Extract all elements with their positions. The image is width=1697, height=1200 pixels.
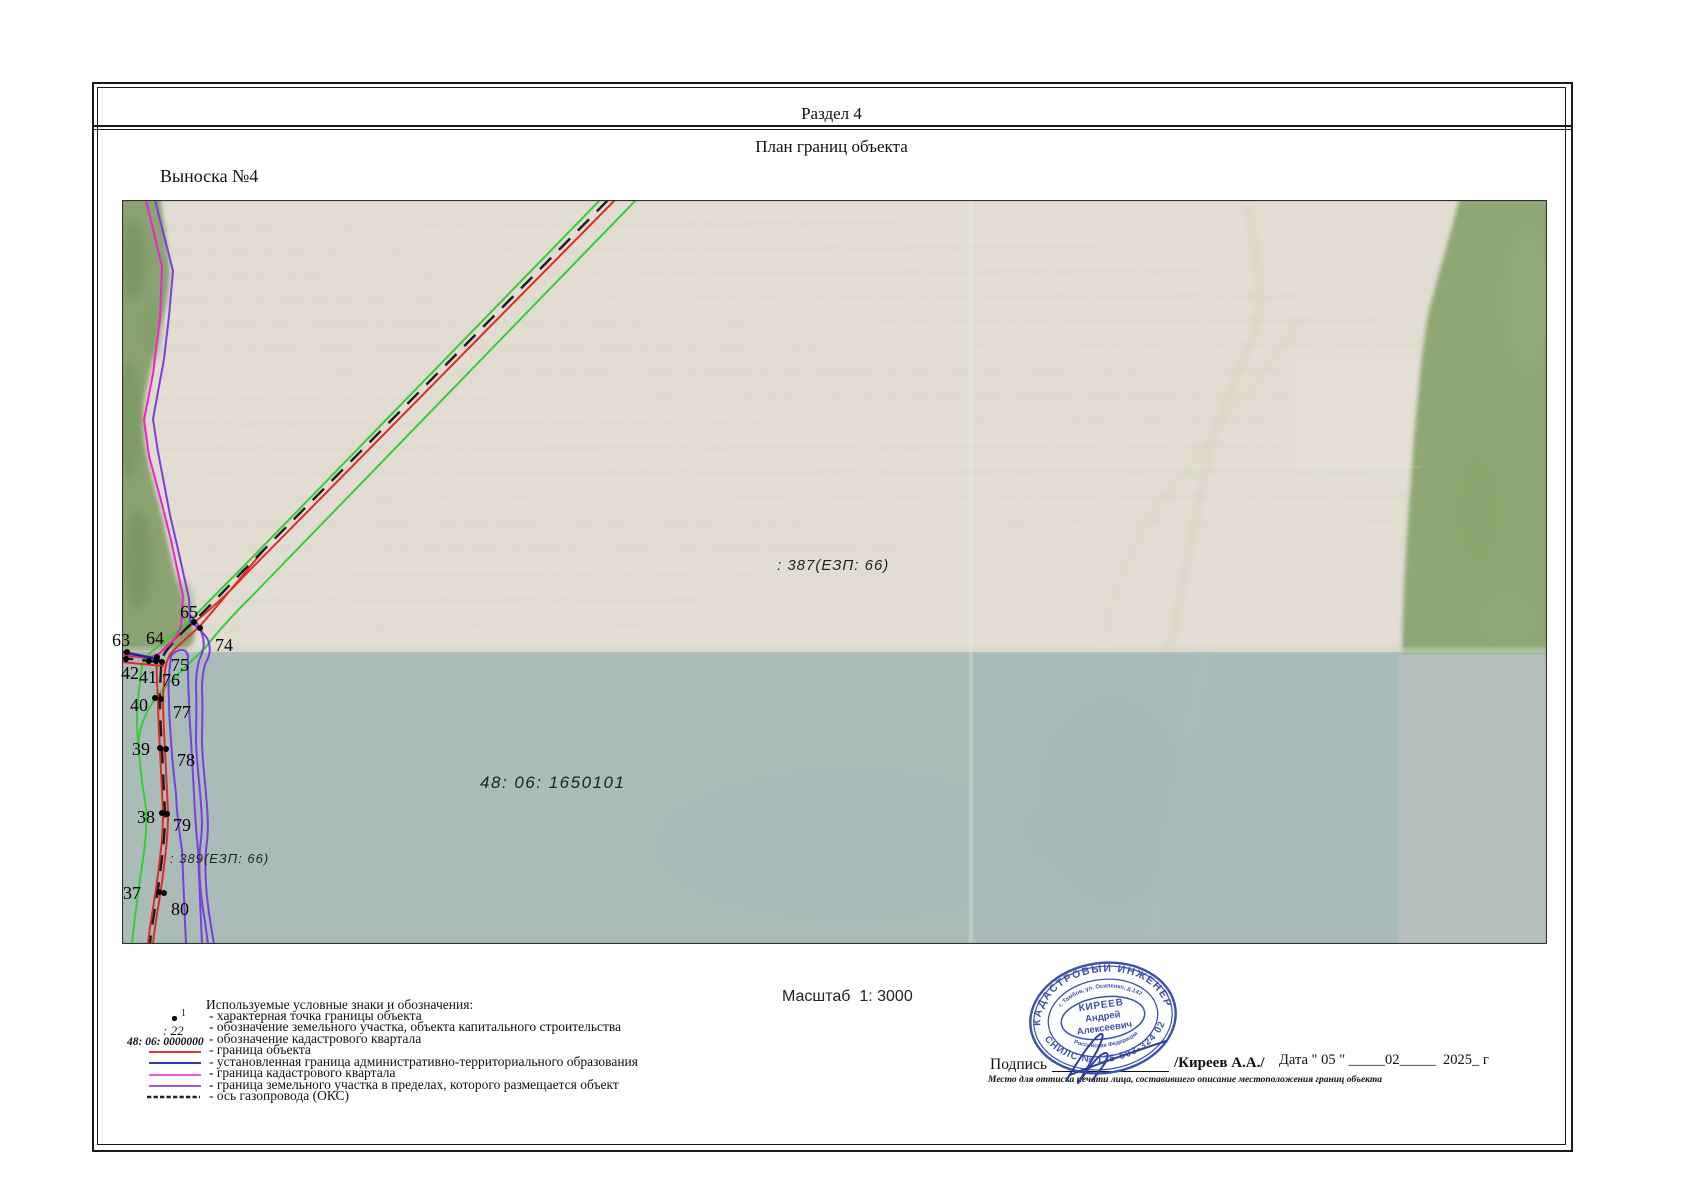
svg-text:65: 65 — [180, 602, 198, 622]
svg-text:37: 37 — [123, 883, 141, 903]
svg-text:: 389(ЕЗП: 66): : 389(ЕЗП: 66) — [170, 851, 269, 866]
svg-text:78: 78 — [177, 750, 195, 770]
svg-text:40: 40 — [130, 695, 148, 715]
svg-text:39: 39 — [132, 739, 150, 759]
svg-text:48: 06: 1650101: 48: 06: 1650101 — [480, 773, 625, 792]
svg-text:79: 79 — [173, 815, 191, 835]
svg-text:42: 42 — [121, 663, 139, 683]
svg-text:63: 63 — [112, 630, 130, 650]
svg-text:77: 77 — [173, 702, 191, 722]
svg-text:: 387(ЕЗП: 66): : 387(ЕЗП: 66) — [777, 557, 889, 574]
svg-text:74: 74 — [215, 635, 233, 655]
svg-text:80: 80 — [171, 899, 189, 919]
svg-text:41: 41 — [139, 667, 157, 687]
svg-text:64: 64 — [146, 628, 164, 648]
svg-text:38: 38 — [137, 807, 155, 827]
svg-text:76: 76 — [162, 670, 180, 690]
